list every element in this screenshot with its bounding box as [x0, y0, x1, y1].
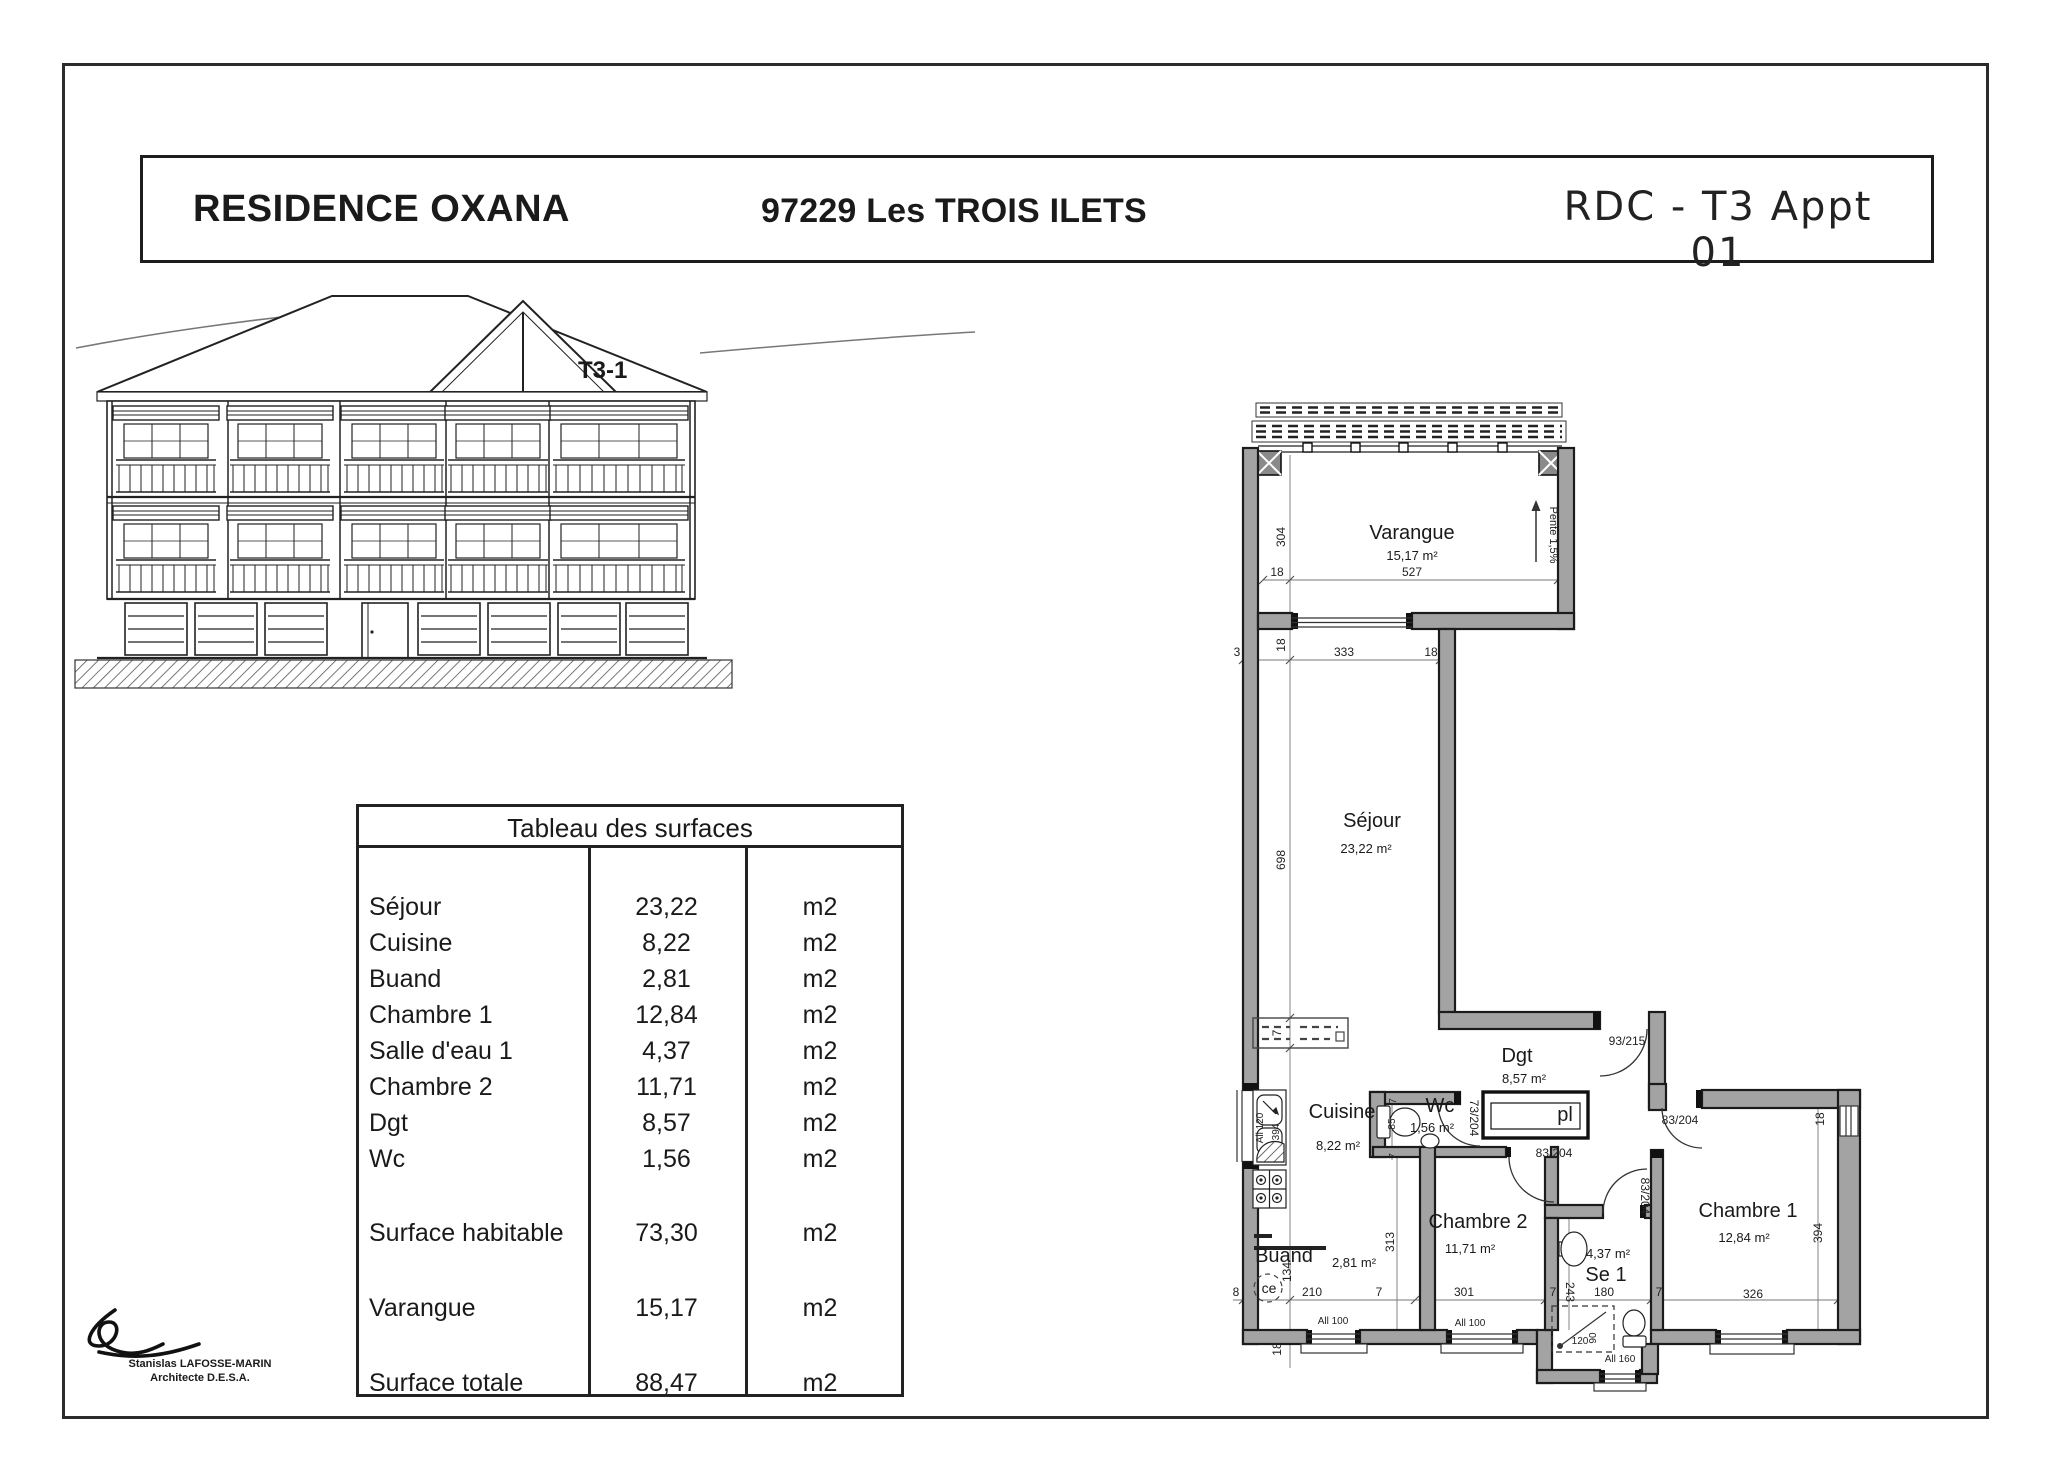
svg-text:394: 394 — [1811, 1223, 1825, 1243]
svg-text:301: 301 — [1454, 1285, 1474, 1299]
table-row: Chambre 112,84m2 — [359, 1001, 901, 1035]
room-se1: Se 1 — [1585, 1264, 1626, 1286]
table-summary-row: Surface habitable73,30m2 — [359, 1219, 901, 1253]
table-row: Cuisine8,22m2 — [359, 929, 901, 963]
rail-posts — [1303, 443, 1507, 452]
svg-text:All 160: All 160 — [1605, 1354, 1636, 1365]
svg-text:11,71 m²: 11,71 m² — [1445, 1241, 1496, 1256]
svg-text:All 120: All 120 — [1255, 1112, 1266, 1143]
svg-text:85: 85 — [1387, 1118, 1398, 1130]
table-row: Dgt8,57m2 — [359, 1109, 901, 1143]
residence-name: RESIDENCE OXANA — [193, 188, 570, 231]
plan-reference: RDC - T3 Appt 01 — [1533, 184, 1903, 276]
room-cuisine: Cuisine — [1309, 1101, 1376, 1123]
slope-label: Pente 1,5% — [1547, 507, 1559, 564]
svg-text:All 100: All 100 — [1318, 1316, 1349, 1327]
svg-text:83/204: 83/204 — [1638, 1178, 1652, 1215]
table-summary-row: Surface totale88,47m2 — [359, 1369, 901, 1403]
slope-arrow — [1532, 500, 1541, 562]
svg-text:83/204: 83/204 — [1662, 1113, 1699, 1127]
wall-caps — [1243, 613, 1787, 1383]
table-row: Wc1,56m2 — [359, 1145, 901, 1179]
svg-text:313: 313 — [1383, 1232, 1397, 1252]
svg-text:7: 7 — [1270, 1029, 1284, 1036]
room-varangue: Varangue — [1369, 522, 1454, 544]
roof — [97, 296, 707, 401]
svg-text:8,22 m²: 8,22 m² — [1316, 1138, 1361, 1153]
svg-text:18: 18 — [1270, 565, 1284, 579]
svg-text:7: 7 — [1388, 1153, 1399, 1159]
svg-text:7: 7 — [1376, 1285, 1383, 1299]
unit-tag: T3-1 — [578, 357, 627, 384]
surface-table-title: Tableau des surfaces — [359, 813, 901, 844]
table-row: Chambre 211,71m2 — [359, 1073, 901, 1107]
entrance-door — [362, 603, 408, 658]
water-heater-label: ce — [1262, 1280, 1277, 1296]
svg-text:243: 243 — [1563, 1282, 1577, 1302]
svg-text:698: 698 — [1274, 850, 1288, 870]
svg-text:134: 134 — [1280, 1262, 1294, 1282]
surface-table-divider — [359, 845, 901, 848]
corner-posts — [1257, 451, 1563, 475]
room-sejour: Séjour — [1343, 810, 1401, 832]
svg-text:18: 18 — [1270, 1342, 1284, 1356]
svg-text:2,81 m²: 2,81 m² — [1332, 1255, 1377, 1270]
claustra-louvers — [1252, 403, 1566, 475]
architect-title: Architecte D.E.S.A. — [60, 1372, 340, 1384]
svg-text:8: 8 — [1233, 1285, 1240, 1299]
room-chambre1: Chambre 1 — [1699, 1200, 1798, 1222]
svg-text:73/204: 73/204 — [1467, 1100, 1481, 1137]
svg-text:18: 18 — [1424, 645, 1438, 659]
plan-sheet: RESIDENCE OXANA 97229 Les TROIS ILETS RD… — [0, 0, 2048, 1480]
architect-signature — [75, 1302, 205, 1362]
svg-text:23,22 m²: 23,22 m² — [1340, 841, 1392, 856]
title-block: RESIDENCE OXANA 97229 Les TROIS ILETS RD… — [140, 155, 1934, 263]
svg-text:210: 210 — [1302, 1285, 1322, 1299]
surface-table: Tableau des surfaces Séjour23,22m2 Cuisi… — [356, 804, 904, 1397]
svg-text:18: 18 — [1813, 1112, 1827, 1126]
svg-text:15,17 m²: 15,17 m² — [1386, 548, 1438, 563]
svg-text:83/204: 83/204 — [1536, 1146, 1573, 1160]
svg-text:1,56 m²: 1,56 m² — [1410, 1120, 1455, 1135]
stove — [1253, 1170, 1286, 1208]
se1-basin — [1559, 1232, 1587, 1266]
svg-text:3: 3 — [1234, 645, 1241, 659]
svg-text:333: 333 — [1334, 645, 1354, 659]
residence-address: 97229 Les TROIS ILETS — [761, 192, 1147, 231]
svg-text:18: 18 — [1274, 638, 1288, 652]
svg-text:90: 90 — [1588, 1332, 1599, 1344]
svg-text:All 100: All 100 — [1455, 1318, 1486, 1329]
svg-text:180: 180 — [1594, 1285, 1614, 1299]
room-chambre2: Chambre 2 — [1429, 1211, 1528, 1233]
room-dgt: Dgt — [1501, 1045, 1533, 1067]
floor-plan: Varangue 15,17 m² Séjour 23,22 m² Dgt 8,… — [1230, 390, 1890, 1410]
table-row: Séjour23,22m2 — [359, 893, 901, 927]
svg-text:12,84 m²: 12,84 m² — [1718, 1230, 1770, 1245]
svg-text:527: 527 — [1402, 565, 1422, 579]
ground-hatch — [75, 660, 732, 688]
svg-text:7: 7 — [1388, 1098, 1399, 1104]
architect-name: Stanislas LAFOSSE-MARIN — [60, 1358, 340, 1370]
svg-text:326: 326 — [1743, 1287, 1763, 1301]
terrain-line-right — [700, 332, 975, 353]
svg-text:394: 394 — [1271, 1123, 1282, 1140]
svg-text:120: 120 — [1572, 1336, 1589, 1347]
table-row: Salle d'eau 14,37m2 — [359, 1037, 901, 1071]
svg-text:93/215: 93/215 — [1609, 1034, 1646, 1048]
svg-text:7: 7 — [1656, 1285, 1663, 1299]
table-summary-row: Varangue15,17m2 — [359, 1294, 901, 1328]
kitchen-counter — [1253, 1018, 1348, 1048]
svg-text:7: 7 — [1550, 1285, 1557, 1299]
se1-toilet — [1623, 1310, 1646, 1347]
svg-text:4,37 m²: 4,37 m² — [1586, 1246, 1631, 1261]
closet-label: pl — [1557, 1104, 1573, 1126]
table-row: Buand2,81m2 — [359, 965, 901, 999]
building-elevation: T3-1 — [70, 280, 980, 700]
room-wc: Wc — [1426, 1095, 1455, 1117]
svg-text:304: 304 — [1274, 527, 1288, 547]
svg-text:8,57 m²: 8,57 m² — [1502, 1071, 1547, 1086]
